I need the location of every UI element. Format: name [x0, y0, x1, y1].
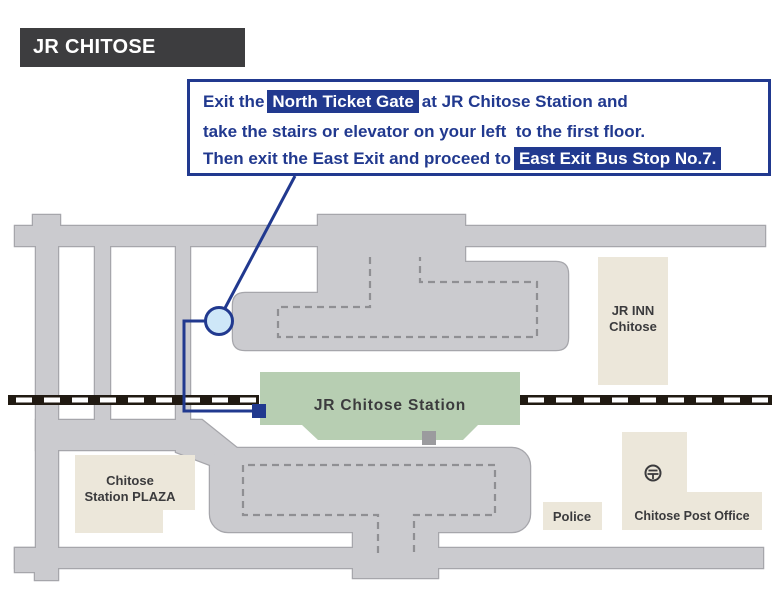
east-exit-square	[422, 431, 436, 445]
station-plaza-label-line1: Chitose	[106, 473, 154, 488]
instruction-line3-pre: Then exit the East Exit and proceed to	[203, 149, 511, 168]
station-plaza-label-line2: Station PLAZA	[85, 489, 177, 504]
station-label: JR Chitose Station	[314, 397, 466, 414]
jr-inn-label-line2: Chitose	[609, 319, 657, 334]
police-label: Police	[553, 509, 591, 524]
station-guide-page: JR Chitose Station JR INN Chitose Chitos…	[0, 0, 780, 600]
instruction-line-3: Then exit the East Exit and proceed toEa…	[203, 146, 768, 171]
instruction-line3-highlight: East Exit Bus Stop No.7.	[514, 147, 721, 170]
instruction-line-1: Exit theNorth Ticket Gateat JR Chitose S…	[203, 89, 768, 114]
page-title: JR CHITOSE STATION	[20, 28, 245, 67]
instruction-line1-highlight: North Ticket Gate	[267, 90, 418, 113]
post-office-label: Chitose Post Office	[634, 509, 749, 523]
jr-inn-label-line1: JR INN	[612, 303, 655, 318]
instruction-line1-pre: Exit the	[203, 92, 264, 111]
instruction-line1-post: at JR Chitose Station and	[422, 92, 628, 111]
instruction-line2-text: take the stairs or elevator on your left…	[203, 122, 645, 141]
bus-stop-marker	[252, 404, 266, 418]
instruction-box: Exit theNorth Ticket Gateat JR Chitose S…	[187, 79, 771, 176]
instruction-line-2: take the stairs or elevator on your left…	[203, 119, 768, 144]
north-ticket-gate-marker	[206, 308, 233, 335]
